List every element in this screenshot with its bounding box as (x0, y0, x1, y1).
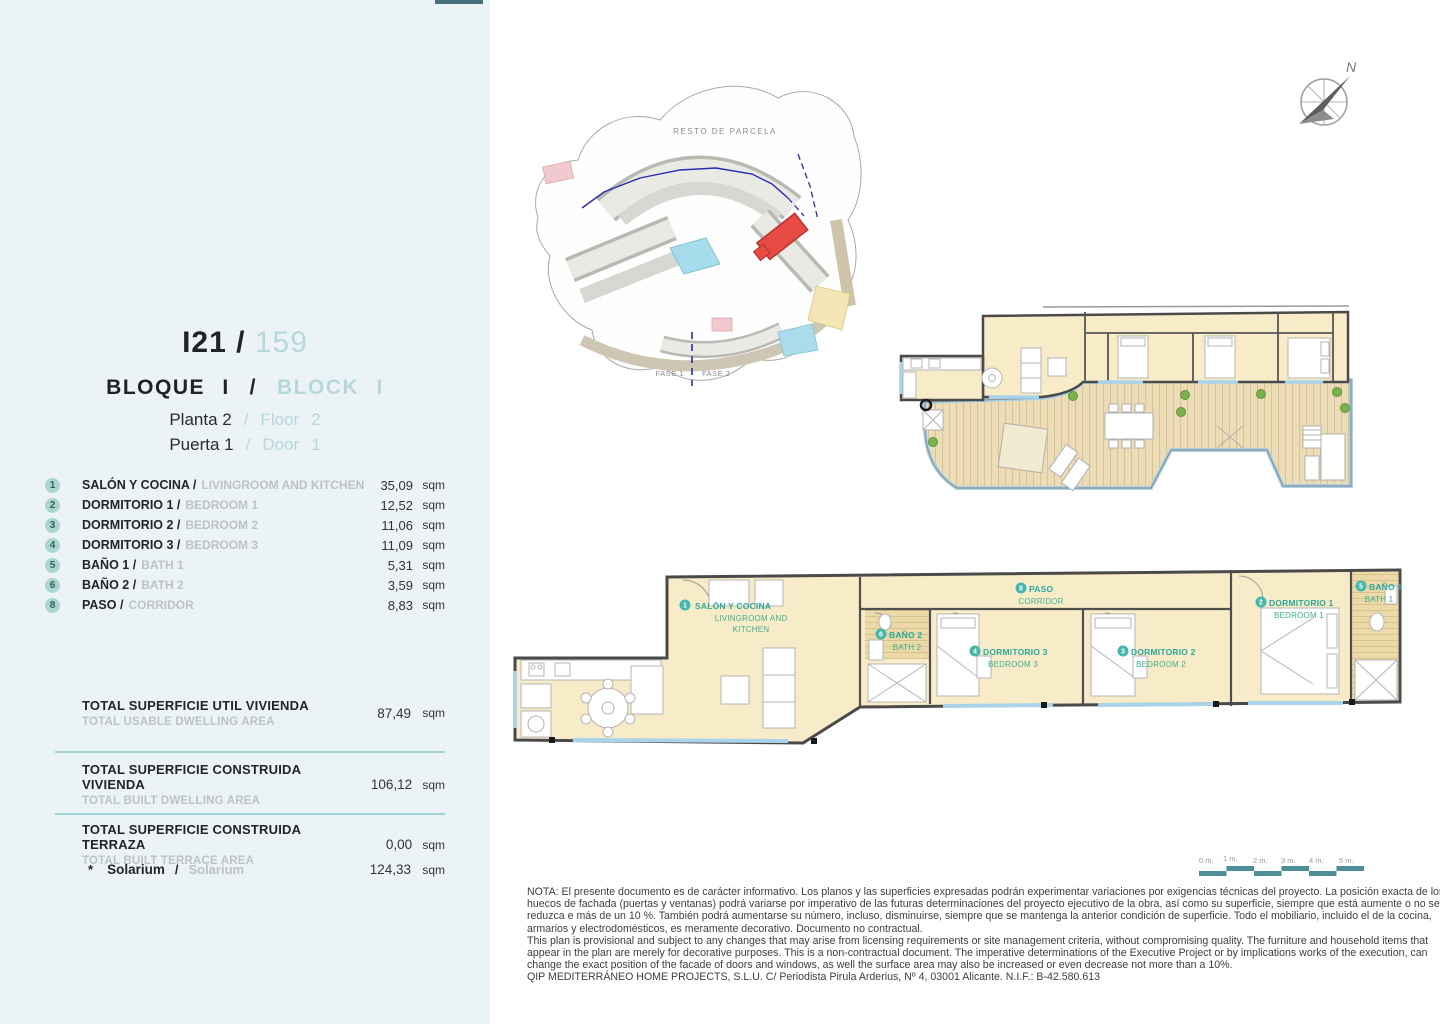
svg-text:PASO: PASO (1029, 584, 1053, 594)
room-number-badge: 2 (45, 498, 60, 513)
room-name-en: BEDROOM 2 (185, 518, 258, 532)
room-row-bath2: 6 BAÑO 2 / BATH 2 3,59 sqm (0, 575, 490, 595)
room-area-unit: sqm (413, 538, 445, 552)
total-unit: sqm (412, 838, 445, 852)
svg-text:3: 3 (1121, 649, 1125, 656)
scale-steps (1199, 866, 1364, 876)
total-label-es: TOTAL SUPERFICIE UTIL VIVIENDA (82, 698, 357, 713)
door-slash: / (246, 435, 251, 455)
room-row-bedroom3: 4 DORMITORIO 3 / BEDROOM 3 11,09 sqm (0, 535, 490, 555)
room-name-en: CORRIDOR (128, 598, 193, 612)
total-label-es: TOTAL SUPERFICIE CONSTRUIDA TERRAZA (82, 822, 358, 852)
svg-text:DORMITORIO 2: DORMITORIO 2 (1131, 647, 1196, 657)
info-sidebar: I21 / 159 BLOQUE I / BLOCK I Planta 2 / … (0, 0, 490, 1024)
legal-notes: NOTA: El presente documento es de caráct… (527, 886, 1409, 984)
scale-tick: 5 m. (1339, 856, 1354, 865)
scale-tick: 0 m. (1199, 856, 1214, 865)
svg-text:BAÑO 1: BAÑO 1 (1369, 582, 1402, 592)
svg-text:DORMITORIO 3: DORMITORIO 3 (983, 647, 1048, 657)
total-value: 87,49 (357, 706, 411, 721)
total-label-en: TOTAL USABLE DWELLING AREA (82, 716, 357, 728)
room-area-unit: sqm (413, 518, 445, 532)
room-area-unit: sqm (413, 558, 445, 572)
room-area: 11,06 (367, 518, 413, 533)
scale-tick: 2 m. (1253, 856, 1268, 865)
unit-separator: / (236, 326, 245, 359)
top-accent-tick (435, 0, 483, 4)
door-line: Puerta 1 / Door 1 (0, 435, 490, 455)
room-area-unit: sqm (413, 598, 445, 612)
room-area: 5,31 (367, 558, 413, 573)
room-row-bedroom2: 3 DORMITORIO 2 / BEDROOM 2 11,06 sqm (0, 515, 490, 535)
svg-text:6: 6 (879, 632, 883, 639)
unit-number: 159 (255, 326, 308, 359)
total-value: 106,12 (358, 777, 412, 792)
svg-text:8: 8 (1019, 586, 1023, 593)
divider (55, 751, 445, 753)
svg-text:1: 1 (683, 603, 687, 610)
svg-text:LIVINGROOM AND: LIVINGROOM AND (715, 614, 788, 623)
total-label-es: TOTAL SUPERFICIE CONSTRUIDA VIVIENDA (82, 762, 358, 792)
total-label-en: TOTAL BUILT DWELLING AREA (82, 795, 358, 807)
svg-text:BEDROOM 2: BEDROOM 2 (1136, 660, 1186, 669)
svg-text:2: 2 (1259, 600, 1263, 607)
solarium-value: 124,33 (357, 862, 411, 877)
svg-text:BATH 2: BATH 2 (893, 643, 922, 652)
scale-tick: 3 m. (1281, 856, 1296, 865)
svg-text:KITCHEN: KITCHEN (733, 625, 770, 634)
solarium-label-en: Solarium (188, 862, 244, 877)
floor-value: 2 (311, 410, 320, 430)
svg-text:CORRIDOR: CORRIDOR (1018, 597, 1063, 606)
room-row-corridor: 8 PASO / CORRIDOR 8,83 sqm (0, 595, 490, 615)
floor-en: Floor (260, 410, 299, 430)
svg-text:SALÓN Y COCINA: SALÓN Y COCINA (695, 600, 771, 611)
room-name-en: LIVINGROOM AND KITCHEN (201, 478, 364, 492)
svg-text:BEDROOM 3: BEDROOM 3 (988, 660, 1038, 669)
block-en: BLOCK I (277, 376, 384, 400)
main-floor-plan: 1 SALÓN Y COCINA LIVINGROOM AND KITCHEN … (513, 556, 1408, 768)
room-number-badge: 8 (45, 598, 60, 613)
solarium-unit: sqm (411, 863, 445, 877)
room-area-unit: sqm (413, 478, 445, 492)
company-line: QIP MEDITERRÁNEO HOME PROJECTS, S.L.U. C… (527, 971, 1409, 983)
room-row-bedroom1: 2 DORMITORIO 1 / BEDROOM 1 12,52 sqm (0, 495, 490, 515)
room-area: 8,83 (367, 598, 413, 613)
room-area: 12,52 (367, 498, 413, 513)
svg-text:DORMITORIO 1: DORMITORIO 1 (1269, 598, 1334, 608)
room-name-es: BAÑO 2 / (82, 578, 136, 592)
svg-text:BAÑO 2: BAÑO 2 (889, 630, 922, 640)
room-name-en: BEDROOM 1 (185, 498, 258, 512)
fase1-label: FASE 1 (656, 369, 684, 378)
scale-tick: 1 m. (1223, 856, 1238, 863)
total-unit: sqm (411, 706, 445, 720)
solarium-asterisk: * (88, 862, 93, 877)
block-line: BLOQUE I / BLOCK I (0, 376, 490, 400)
site-location-plan: RESTO DE PARCELA FASE 1 FASE 2 (520, 58, 880, 393)
note-line: armarios y electrodomésticos, es meramen… (527, 923, 1409, 935)
north-label: N (1346, 59, 1357, 75)
note-line: reduzca e más de un 10 %. También podrá … (527, 910, 1409, 922)
room-row-salon: 1 SALÓN Y COCINA / LIVINGROOM AND KITCHE… (0, 475, 490, 495)
floor-es: Planta 2 (169, 410, 231, 430)
room-number-badge: 1 (45, 478, 60, 493)
compass-rose: N (1288, 55, 1368, 135)
door-es: Puerta 1 (169, 435, 233, 455)
room-name-es: DORMITORIO 1 / (82, 498, 180, 512)
fase2-label: FASE 2 (702, 369, 730, 378)
room-list: 1 SALÓN Y COCINA / LIVINGROOM AND KITCHE… (0, 475, 490, 615)
divider (55, 813, 445, 815)
block-es: BLOQUE I (106, 376, 230, 400)
note-line: This plan is provisional and subject to … (527, 935, 1409, 947)
total-built-terrace-area: TOTAL SUPERFICIE CONSTRUIDA TERRAZA TOTA… (82, 822, 445, 867)
total-unit: sqm (412, 778, 445, 792)
total-built-dwelling-area: TOTAL SUPERFICIE CONSTRUIDA VIVIENDA TOT… (82, 762, 445, 807)
floor-slash: / (244, 410, 249, 430)
room-name-en: BATH 1 (141, 558, 183, 572)
room-number-badge: 3 (45, 518, 60, 533)
door-en: Door (262, 435, 299, 455)
room-name-en: BEDROOM 3 (185, 538, 258, 552)
room-area: 3,59 (367, 578, 413, 593)
total-usable-area: TOTAL SUPERFICIE UTIL VIVIENDA TOTAL USA… (82, 698, 445, 728)
room-area: 35,09 (367, 478, 413, 493)
room-name-es: SALÓN Y COCINA / (82, 478, 196, 492)
room-name-es: PASO / (82, 598, 123, 612)
note-line: appear in the plan are merely for decora… (527, 947, 1409, 959)
plan-document-page: I21 / 159 BLOQUE I / BLOCK I Planta 2 / … (0, 0, 1440, 1024)
solarium-floor-plan (893, 298, 1373, 520)
room-name-es: DORMITORIO 3 / (82, 538, 180, 552)
room-row-bath1: 5 BAÑO 1 / BATH 1 5,31 sqm (0, 555, 490, 575)
note-line: huecos de fachada (puertas y ventanas) p… (527, 898, 1409, 910)
unit-code: I21 (182, 326, 227, 359)
note-line: change the exact position of the facade … (527, 959, 1409, 971)
note-line: NOTA: El presente documento es de caráct… (527, 886, 1409, 898)
room-number-badge: 5 (45, 558, 60, 573)
room-number-badge: 4 (45, 538, 60, 553)
solarium-label-es: Solarium (107, 862, 165, 877)
block-slash: / (250, 376, 257, 400)
scale-bar: 0 m. 1 m. 2 m. 3 m. 4 m. 5 m. (1197, 856, 1365, 884)
room-name-es: BAÑO 1 / (82, 558, 136, 572)
room-number-badge: 6 (45, 578, 60, 593)
room-name-en: BATH 2 (141, 578, 183, 592)
total-value: 0,00 (358, 837, 412, 852)
svg-text:BATH 1: BATH 1 (1365, 595, 1394, 604)
resto-de-parcela-label: RESTO DE PARCELA (673, 127, 777, 136)
room-name-es: DORMITORIO 2 / (82, 518, 180, 532)
unit-title: I21 / 159 (0, 326, 490, 360)
room-area-unit: sqm (413, 578, 445, 592)
svg-text:5: 5 (1359, 584, 1363, 591)
svg-text:BEDROOM 1: BEDROOM 1 (1274, 611, 1324, 620)
room-area: 11,09 (367, 538, 413, 553)
room-area-unit: sqm (413, 498, 445, 512)
solarium-slash: / (175, 862, 179, 877)
scale-tick: 4 m. (1309, 856, 1324, 865)
floor-line: Planta 2 / Floor 2 (0, 410, 490, 430)
door-value: 1 (311, 435, 320, 455)
svg-text:4: 4 (973, 649, 977, 656)
solarium-row: * Solarium / Solarium 124,33 sqm (88, 862, 445, 877)
